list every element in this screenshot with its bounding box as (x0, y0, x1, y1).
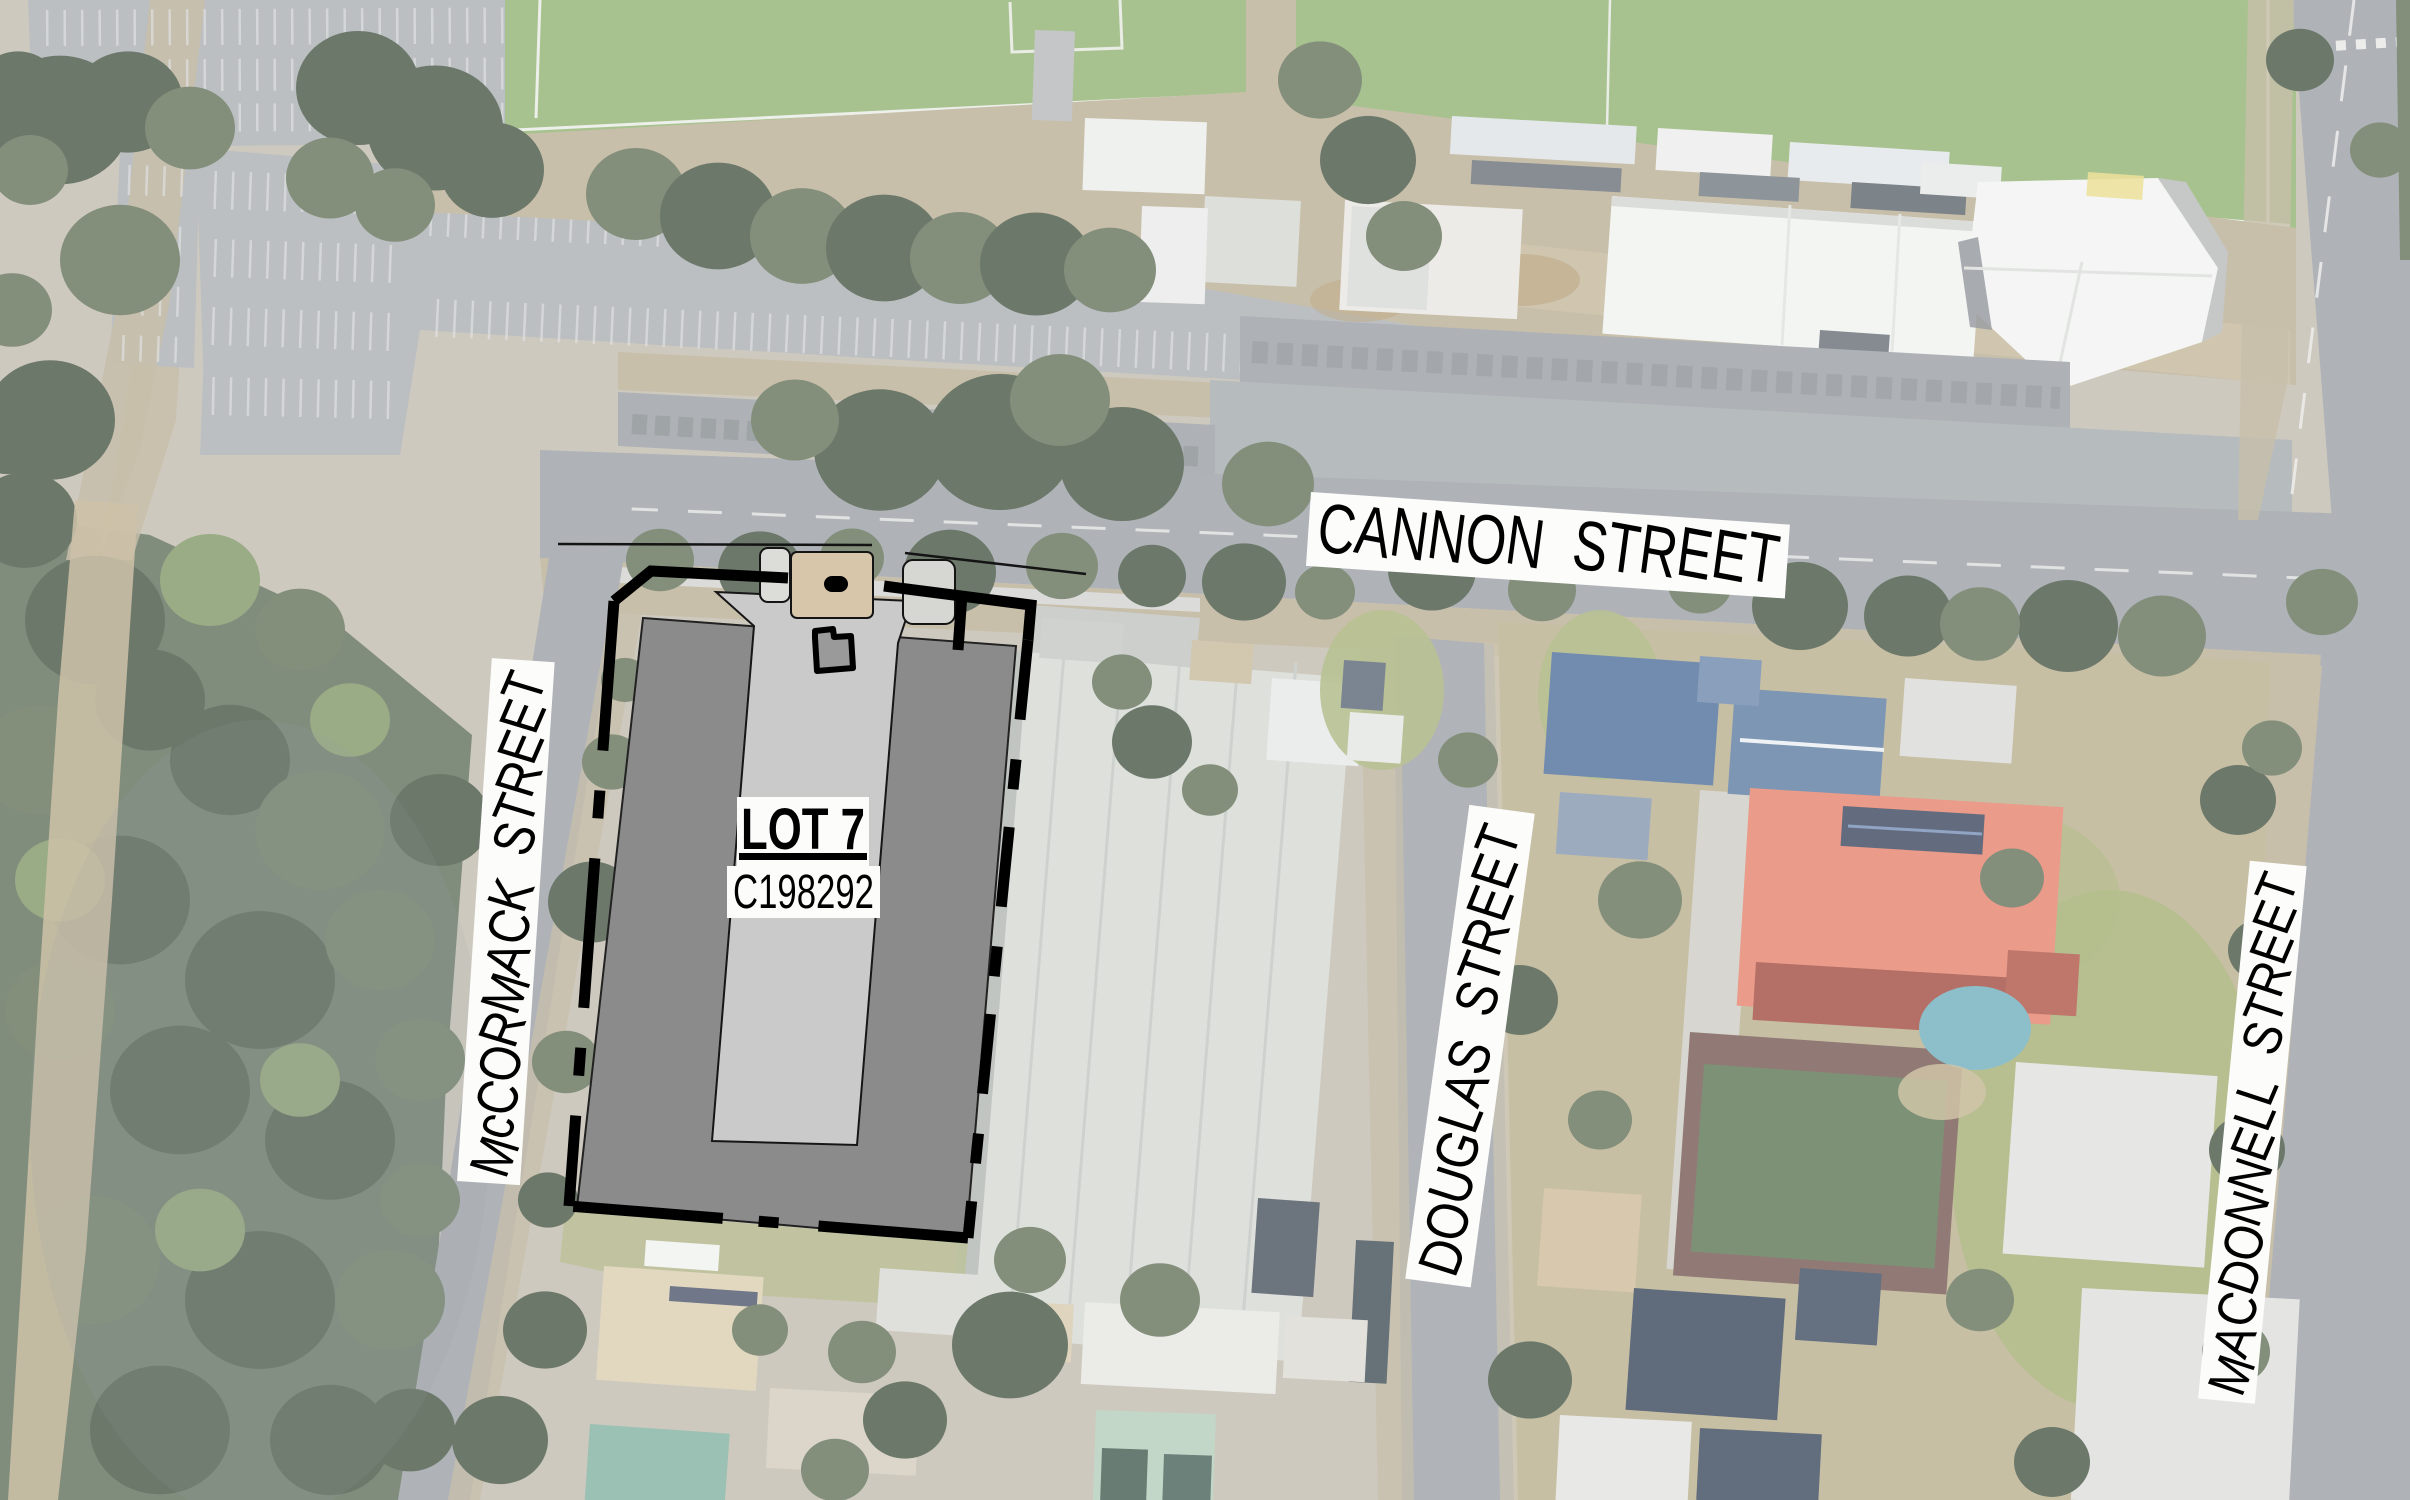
svg-text:C198292: C198292 (733, 866, 874, 919)
svg-text:LOT 7: LOT 7 (741, 797, 865, 862)
